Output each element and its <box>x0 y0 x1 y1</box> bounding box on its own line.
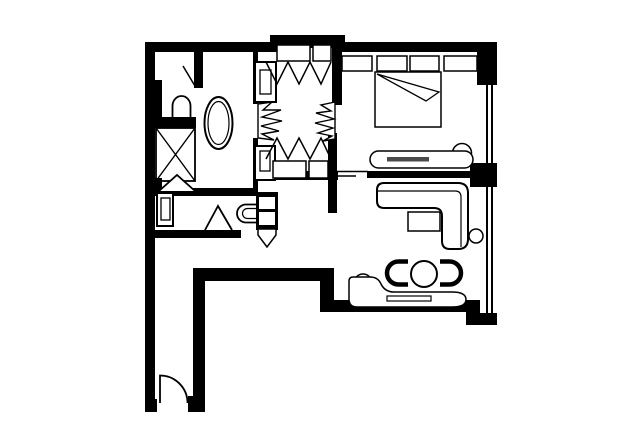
daybed-lounge <box>349 277 466 307</box>
bathtub-inner-rim <box>208 102 229 145</box>
bedroom-window-glazing-inner <box>491 84 493 163</box>
folding-door-right <box>315 102 335 141</box>
closet-bottom-shelf-right <box>309 161 328 178</box>
wall-cabinet-upper <box>255 62 276 102</box>
living-window-glazing-outer <box>486 187 488 313</box>
top-wall-left <box>145 42 282 52</box>
bathtub-outer-rim <box>205 97 233 149</box>
hallway-wc <box>157 192 278 247</box>
entry-door-swing <box>160 376 188 404</box>
top-right-corner-wall <box>477 42 497 85</box>
dining-table <box>411 261 437 287</box>
corridor-right-wall <box>193 268 205 405</box>
bedroom <box>342 56 477 168</box>
shower-door-swing <box>159 175 195 191</box>
tub-chair-right <box>440 262 461 285</box>
coffee-table <box>408 212 440 231</box>
wc-toilet-outer <box>237 205 257 223</box>
corridor-left-entry-stub <box>145 399 157 412</box>
floor-plan-svg <box>0 0 640 446</box>
closet-top-shelf-left <box>277 45 310 61</box>
wc-shelf-lower <box>259 212 275 225</box>
passage-wall-horizontal <box>193 268 334 281</box>
chaise-cushion-stripe <box>387 157 429 162</box>
wc-door-swing <box>258 229 276 247</box>
folding-door-left <box>258 102 282 140</box>
living-window-glazing-inner <box>491 187 493 313</box>
bed <box>375 72 441 127</box>
daybed-cushion-stripe <box>387 296 431 301</box>
partition-lines <box>337 172 368 177</box>
bed-pillow-left <box>377 56 407 71</box>
nightstand-right <box>444 56 477 71</box>
closet-top-shelf-right <box>313 45 331 61</box>
nightstand-left <box>342 56 372 71</box>
top-wall-right <box>336 42 484 52</box>
floor-plan-canvas <box>0 0 640 446</box>
living-room <box>349 183 483 307</box>
side-table <box>469 229 483 243</box>
bed-pillow-right <box>410 56 439 71</box>
tub-chair-left <box>387 262 408 285</box>
toilet-alcove-divider-wall <box>194 52 203 88</box>
corridor-right-entry-stub <box>188 396 205 412</box>
hallway-bottom-wall <box>153 230 241 238</box>
window-pier-wall <box>470 163 497 187</box>
bedroom-window-glazing-outer <box>486 84 488 163</box>
alcove-door-leaf <box>183 66 195 86</box>
bottom-right-corner-wall-h <box>466 313 497 325</box>
bedroom-living-divider-wall <box>367 171 478 178</box>
vestibule-bedroom-wall-upper <box>332 42 342 105</box>
entry-corridor <box>160 376 188 404</box>
closet-bottom-shelf-left <box>273 161 306 178</box>
hall-door-swing <box>205 206 232 230</box>
windows <box>486 84 493 313</box>
wc-toilet-inner <box>243 209 258 219</box>
wc-shelf-upper <box>259 197 275 209</box>
